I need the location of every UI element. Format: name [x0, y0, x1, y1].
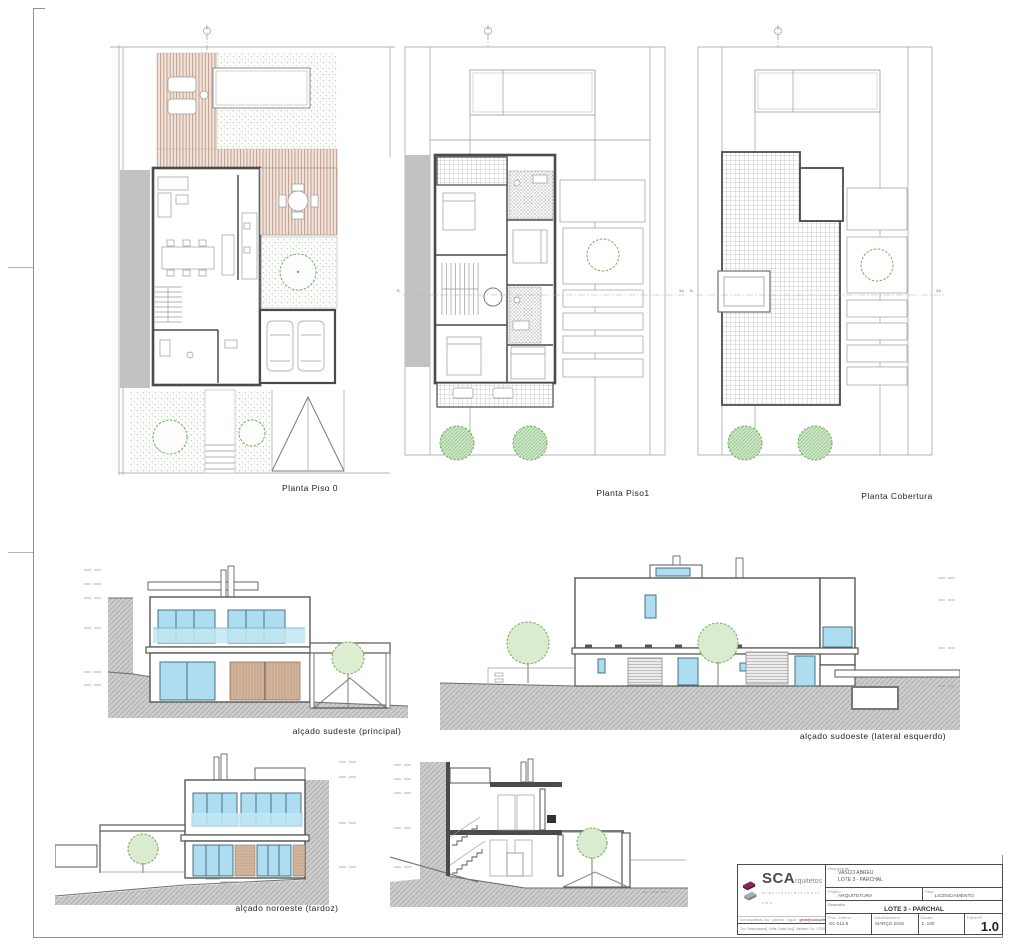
louver-stack — [560, 180, 645, 377]
title-block-fields: Requerente VASCO ABREU LOTE 3 - PARCHAL … — [826, 865, 1002, 934]
driveway-gate — [272, 390, 344, 471]
escala-label: Escala — [921, 915, 933, 920]
street-strip — [120, 170, 150, 388]
title-block-logo-cell: SCArquitetos a r q u i t e t u r a | u r… — [738, 865, 826, 934]
field-fase: Fase LICENCIAMENTO — [923, 888, 1002, 900]
fold-mark-1 — [8, 267, 33, 268]
elevation-sudoeste — [440, 555, 960, 735]
svg-text:3A: 3A — [936, 288, 941, 293]
svg-text:B.: B. — [690, 288, 694, 293]
proc-value: SC 012.6 — [829, 921, 848, 926]
caption-elev-noroeste: alçado noroeste (tardoz) — [236, 903, 339, 913]
escala-value: 1: 100 — [922, 921, 935, 926]
elevation-noroeste — [55, 745, 390, 910]
elevation-sudeste — [80, 550, 410, 725]
drawing-sheet: Planta Piso 0 — [0, 0, 1009, 948]
caption-plan-piso0: Planta Piso 0 — [282, 483, 338, 493]
logo-acronym: SCA — [762, 870, 795, 887]
building — [146, 566, 314, 702]
neighbor-wall — [55, 845, 97, 867]
pool-outline — [470, 70, 595, 115]
data-label: Data/Desenho — [874, 915, 900, 920]
svg-text:B.: B. — [397, 288, 401, 293]
section-drawing — [390, 745, 690, 910]
sca-logo-icon — [741, 874, 759, 908]
fold-mark-2 — [8, 552, 33, 553]
logo-contact-highlight: geral@scarquitetos.com — [799, 918, 825, 922]
projeto-value: ARQUITETURA — [838, 894, 872, 899]
frame-left-line — [33, 8, 34, 938]
field-row-bottom: Proc. Interno SC 012.6 Data/Desenho MARÇ… — [826, 914, 1002, 934]
balcony-top — [437, 157, 507, 185]
tree — [577, 828, 607, 858]
logo-name-rest: rquitetos — [795, 878, 822, 885]
street-strip — [405, 155, 430, 367]
floor-plan-piso1: B. 3A — [395, 25, 695, 495]
stairs — [450, 817, 485, 873]
requerente-label: Requerente — [828, 866, 849, 871]
resp-name: Sofia Costa, Arq. — [766, 927, 793, 931]
field-desenho: Desenho LOTE 3 - PARCHAL — [826, 901, 1002, 914]
ground-hatch — [55, 879, 329, 905]
field-row-projeto-fase: Projeto ARQUITETURA Fase LICENCIAMENTO — [826, 888, 1002, 901]
resp-number: Membro OA · 17008 — [793, 927, 825, 931]
louver-stack — [847, 188, 907, 385]
glass-balustrade — [153, 628, 305, 643]
section-structure — [446, 759, 624, 887]
field-proc: Proc. Interno SC 012.6 — [826, 914, 872, 934]
tree — [332, 642, 364, 674]
glass-balustrade — [191, 813, 303, 827]
svg-text:3A: 3A — [679, 288, 684, 293]
requerente-value-2: LOTE 3 - PARCHAL — [838, 877, 998, 884]
skylight — [718, 271, 770, 312]
field-escala: Escala 1: 100 — [919, 914, 965, 934]
data-value: MARÇO 2019 — [875, 921, 904, 926]
field-requerente: Requerente VASCO ABREU LOTE 3 - PARCHAL — [826, 865, 1002, 888]
level-marks — [339, 762, 356, 867]
requerente-value-1: VASCO ABREU — [838, 870, 998, 877]
wood-slats — [235, 845, 255, 876]
projeto-label: Projeto — [828, 889, 841, 894]
chimney-icon — [221, 566, 234, 597]
fase-value: LICENCIAMENTO — [935, 894, 974, 899]
roof-plan: B. 3A — [690, 25, 950, 495]
responsible-row: Téc. Responsável Sofia Costa, Arq. Membr… — [738, 923, 825, 934]
field-folha: Folha Nº 1.0 — [965, 914, 1002, 934]
resp-label: Téc. Responsável — [738, 927, 766, 931]
level-marks — [84, 570, 101, 685]
floor-plan-piso0 — [70, 25, 400, 495]
desenho-label: Desenho — [828, 902, 845, 907]
proc-label: Proc. Interno — [828, 915, 851, 920]
caption-elev-sudoeste: alçado sudoeste (lateral esquerdo) — [800, 731, 946, 741]
building — [572, 556, 858, 686]
tree — [280, 254, 316, 290]
frame-bottom-line — [33, 937, 1003, 938]
bathroom-2 — [509, 287, 541, 343]
caption-roof-plan: Planta Cobertura — [861, 491, 932, 501]
caption-plan-piso1: Planta Piso1 — [596, 488, 649, 498]
frame-top-tick — [33, 8, 45, 9]
field-projeto: Projeto ARQUITETURA — [826, 888, 923, 900]
pool — [213, 68, 310, 108]
fase-label: Fase — [925, 889, 934, 894]
caption-elev-sudeste: alçado sudeste (principal) — [293, 726, 402, 736]
louver-door — [628, 658, 662, 685]
pergola — [310, 642, 390, 708]
courtyard — [563, 828, 686, 892]
tree — [128, 834, 158, 864]
sheet-number: 1.0 — [967, 919, 999, 934]
logo-contact-line: sca arquitetos, lda · parchal · lagoa · … — [738, 916, 825, 923]
louver-panel — [746, 652, 788, 684]
stair-void — [484, 288, 502, 306]
field-data: Data/Desenho MARÇO 2019 — [872, 914, 918, 934]
terrace-left — [488, 668, 575, 683]
folha-label: Folha Nº — [967, 915, 982, 920]
garden-bottom — [130, 390, 270, 473]
level-marks — [394, 765, 411, 883]
pool-outline — [755, 70, 880, 112]
building — [181, 754, 309, 878]
title-block: SCArquitetos a r q u i t e t u r a | u r… — [737, 864, 1003, 935]
logo-tagline: a r q u i t e t u r a | u r b a n i s m … — [762, 888, 822, 908]
desenho-value: LOTE 3 - PARCHAL — [884, 906, 944, 913]
left-wing — [55, 825, 185, 873]
logo-name: SCArquitetos a r q u i t e t u r a | u r… — [762, 874, 822, 908]
